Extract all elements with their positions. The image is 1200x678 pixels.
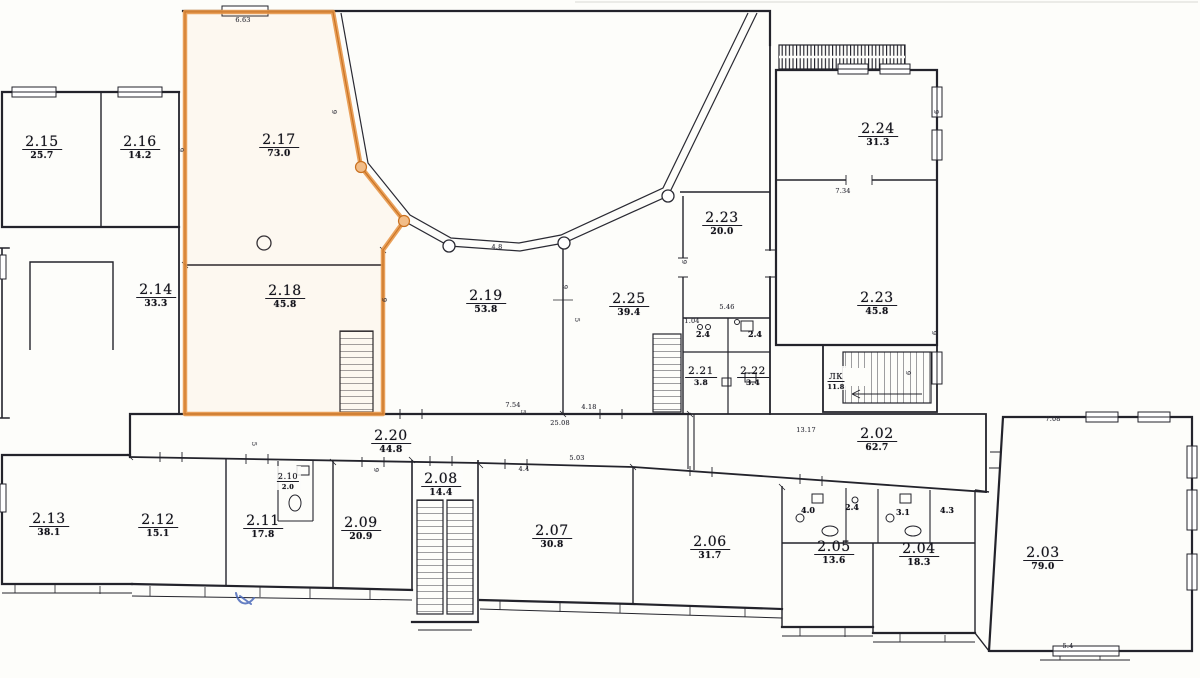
dimension-label: 4.4 [519, 465, 530, 473]
room-label-stairwell: ЛК11.8 [825, 366, 846, 390]
dimension-label: 4.8 [492, 243, 503, 251]
dimension-label: 5.03 [569, 454, 584, 462]
dimension-label: 5 [250, 442, 258, 446]
room-area: 38.1 [29, 529, 69, 538]
room-area: 30.8 [532, 541, 572, 550]
room-area: 45.8 [857, 308, 897, 317]
dimension-label: 5 [573, 318, 581, 322]
dimension-label: 5.4 [1063, 642, 1074, 650]
room-number: 2.21 [685, 366, 717, 378]
room-label-2-13: 2.1338.1 [29, 510, 69, 538]
small-room-area: 4.0 [801, 505, 815, 515]
room-label-2-08: 2.0814.4 [419, 470, 463, 498]
dimension-label: 9 [561, 285, 569, 289]
dimension-label: 9 [330, 110, 338, 114]
room-area: 14.2 [120, 152, 160, 161]
room-area: 31.3 [858, 139, 898, 148]
small-room-area: 2.4 [845, 502, 859, 512]
room-label-2-10: 2.102.0 [275, 466, 301, 490]
room-number: 2.03 [1023, 546, 1063, 561]
room-label-2-06: 2.0631.7 [690, 533, 730, 561]
dimension-label: 7.08 [1045, 415, 1060, 423]
room-number: 2.19 [466, 289, 506, 304]
window-strips [2, 585, 1130, 660]
room-area: 39.4 [609, 309, 649, 318]
floor-plan-drawing [0, 0, 1200, 678]
room-number: 2.12 [138, 513, 178, 528]
dimension-label: 25.08 [550, 419, 570, 427]
room-label-2-11: 2.1117.8 [243, 512, 283, 540]
selected-area-outline[interactable] [185, 12, 404, 414]
room-number: 2.24 [858, 122, 898, 137]
room-number: 2.14 [136, 283, 176, 298]
selected-area-node [356, 162, 367, 173]
room-label-2-18: 2.1845.8 [265, 282, 305, 310]
room-label-2-19: 2.1953.8 [466, 287, 506, 315]
room-area: 13.6 [814, 557, 854, 566]
room-area: 53.8 [466, 306, 506, 315]
dimension-label: 13.17 [796, 426, 816, 434]
room-number: 2.02 [857, 427, 897, 442]
room-number: 2.23 [702, 211, 742, 226]
room-number: 2.06 [690, 535, 730, 550]
room-area: 18.3 [899, 559, 939, 568]
room-area: 45.8 [265, 301, 305, 310]
selected-area-node [399, 216, 410, 227]
room-label-2-02: 2.0262.7 [857, 425, 897, 453]
room-label-2-22: 2.223.4 [737, 361, 769, 387]
room-label-2-07: 2.0730.8 [532, 522, 572, 550]
room-number: 2.11 [243, 514, 283, 529]
room-area: 14.4 [421, 489, 461, 498]
room-label-2-03: 2.0379.0 [1023, 544, 1063, 572]
dimension-label: 9 [930, 331, 938, 335]
room-number: 2.16 [120, 135, 160, 150]
room-label-2-20: 2.2044.8 [371, 427, 411, 455]
room-number: 2.18 [265, 284, 305, 299]
room-area: 44.8 [371, 446, 411, 455]
room-area: 3.4 [737, 379, 769, 387]
room-label-2-04: 2.0418.3 [899, 540, 939, 568]
floor-plan-page: 2.1525.7 2.1614.2 2.1773.0 2.1433.3 2.18… [0, 0, 1200, 678]
room-area: 25.7 [22, 152, 62, 161]
dimension-label: 4.18 [581, 403, 596, 411]
room-area: 62.7 [857, 444, 897, 453]
room-area: 31.7 [690, 552, 730, 561]
dimension-label: 1.04 [684, 317, 699, 325]
dimension-label: 5.46 [719, 303, 734, 311]
small-room-area: 2.4 [696, 329, 710, 339]
room-number: 2.04 [899, 542, 939, 557]
small-room-area: 4.3 [940, 505, 954, 515]
room-label-2-17: 2.1773.0 [259, 131, 299, 159]
dimension-label: 7.34 [835, 187, 850, 195]
blue-pen-mark [236, 593, 254, 604]
room-label-2-25: 2.2539.4 [609, 290, 649, 318]
room-number: ЛК [828, 373, 844, 382]
room-area: 73.0 [259, 150, 299, 159]
dimension-label: 6.63 [235, 16, 250, 24]
room-label-2-14: 2.1433.3 [136, 281, 176, 309]
room-number: 2.07 [532, 524, 572, 539]
outer-walls [0, 11, 1192, 651]
room-number: 2.08 [421, 472, 461, 487]
dimension-label: 5 [519, 410, 527, 414]
room-number: 2.15 [22, 135, 62, 150]
room-number: 2.25 [609, 292, 649, 307]
dimension-label: 9 [380, 298, 388, 302]
room-number: 2.09 [341, 516, 381, 531]
room-label-2-24: 2.2431.3 [858, 120, 898, 148]
room-area: 79.0 [1023, 563, 1063, 572]
dimension-label: 9 [372, 468, 380, 472]
room-label-2-12: 2.1215.1 [138, 511, 178, 539]
room-number: 2.17 [259, 133, 299, 148]
room-area: 17.8 [243, 531, 283, 540]
room-number: 2.13 [29, 512, 69, 527]
room-number: 2.22 [737, 366, 769, 378]
dimension-label: 9 [932, 110, 940, 114]
room-number: 2.10 [277, 473, 299, 482]
small-room-area: 2.4 [748, 329, 762, 339]
room-label-2-23b: 2.2345.8 [857, 289, 897, 317]
room-number: 2.05 [814, 540, 854, 555]
room-label-2-15: 2.1525.7 [22, 133, 62, 161]
room-area: 3.8 [685, 379, 717, 387]
room-label-2-05: 2.0513.6 [814, 538, 854, 566]
room-area: 20.9 [341, 533, 381, 542]
dimension-label: 7.54 [505, 401, 520, 409]
dimension-label: 9 [177, 148, 185, 152]
room-area: 20.0 [702, 228, 742, 237]
room-label-2-09: 2.0920.9 [341, 514, 381, 542]
dimension-label: 9 [904, 371, 912, 375]
room-label-2-21: 2.213.8 [685, 361, 717, 387]
room-area: 11.8 [827, 384, 844, 391]
room-number: 2.20 [371, 429, 411, 444]
dimension-label: 9 [680, 260, 688, 264]
room-area: 15.1 [138, 530, 178, 539]
room-label-2-16: 2.1614.2 [120, 133, 160, 161]
room-label-2-23a: 2.2320.0 [702, 209, 742, 237]
room-area: 33.3 [136, 300, 176, 309]
small-room-area: 3.1 [896, 507, 910, 517]
room-area: 2.0 [277, 484, 299, 491]
room-number: 2.23 [857, 291, 897, 306]
